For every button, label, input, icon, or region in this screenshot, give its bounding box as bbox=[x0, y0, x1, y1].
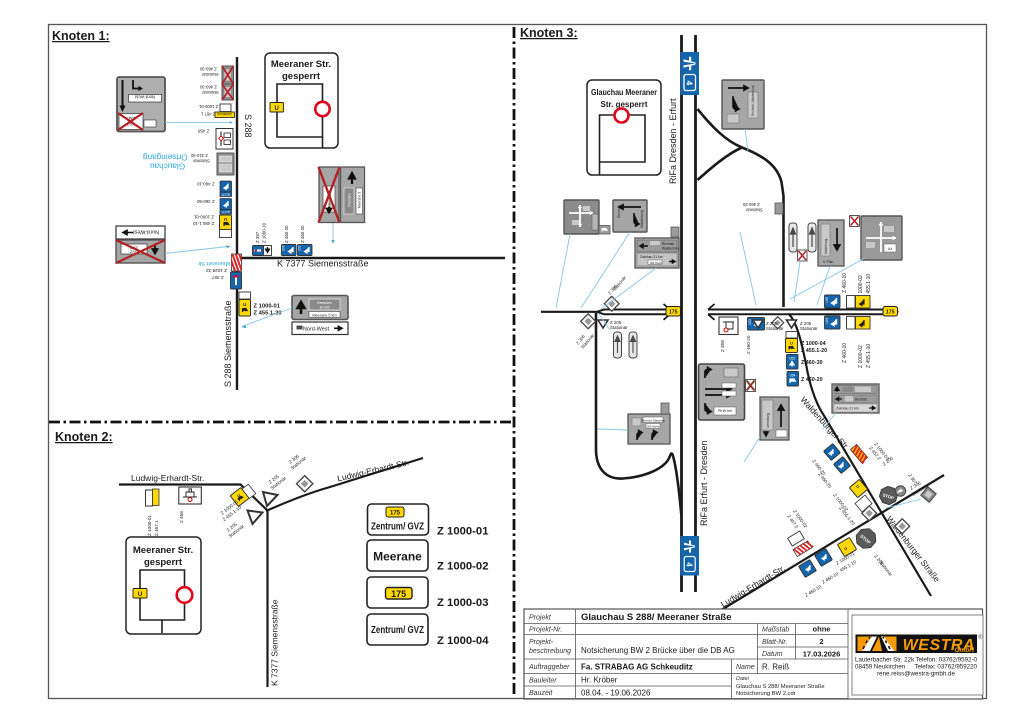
svg-text:S 288: S 288 bbox=[243, 114, 253, 138]
svg-text:U50: U50 bbox=[282, 245, 286, 251]
svg-text:A4: A4 bbox=[888, 247, 892, 251]
svg-text:Z 1000-01: Z 1000-01 bbox=[193, 215, 214, 220]
svg-text:Waldenburg: Waldenburg bbox=[662, 247, 680, 251]
svg-text:R. Reiß: R. Reiß bbox=[762, 663, 789, 672]
svg-text:Z 310-40: Z 310-40 bbox=[190, 153, 207, 158]
svg-text:Z 1000-01: Z 1000-01 bbox=[147, 515, 152, 536]
svg-text:Datei: Datei bbox=[736, 676, 750, 682]
svg-text:Waldenburg: Waldenburg bbox=[640, 210, 644, 228]
svg-text:U: U bbox=[224, 217, 227, 222]
svg-text:4: 4 bbox=[684, 562, 693, 567]
svg-text:Projekt-Nr.: Projekt-Nr. bbox=[529, 627, 562, 634]
svg-text:Z 1000-02: Z 1000-02 bbox=[858, 345, 864, 368]
svg-text:Zentrum/ GVZ: Zentrum/ GVZ bbox=[371, 625, 424, 636]
svg-text:S 288 Siemensstraße: S 288 Siemensstraße bbox=[223, 300, 233, 387]
svg-text:Blatt-Nr.: Blatt-Nr. bbox=[762, 639, 787, 646]
svg-text:Meerane: Meerane bbox=[373, 550, 422, 564]
svg-text:Glauchau S 288/ Meeraner Straß: Glauchau S 288/ Meeraner Straße bbox=[581, 612, 731, 623]
svg-text:U53: U53 bbox=[825, 318, 829, 324]
svg-text:U52: U52 bbox=[748, 319, 752, 325]
svg-text:GmbH: GmbH bbox=[955, 647, 975, 654]
svg-text:Z 458: Z 458 bbox=[720, 340, 725, 352]
svg-text:U54: U54 bbox=[790, 374, 796, 378]
svg-text:Stationär: Stationär bbox=[800, 326, 818, 331]
svg-text:Z 1000-02: Z 1000-02 bbox=[858, 275, 864, 298]
svg-text:Name: Name bbox=[736, 664, 755, 671]
svg-text:Meeraner Str.: Meeraner Str. bbox=[133, 545, 193, 556]
svg-text:Telefax: 03762/959220: Telefax: 03762/959220 bbox=[914, 664, 977, 671]
svg-text:Z 458: Z 458 bbox=[179, 511, 184, 523]
svg-text:Glauchau S 288/ Meeraner Straß: Glauchau S 288/ Meeraner Straße bbox=[736, 684, 825, 690]
svg-text:U55: U55 bbox=[825, 297, 829, 303]
svg-text:Z 1000-04: Z 1000-04 bbox=[437, 635, 489, 647]
svg-text:RiFa Dresden - Erfurt: RiFa Dresden - Erfurt bbox=[668, 98, 678, 184]
svg-text:Z 455.1-10: Z 455.1-10 bbox=[866, 344, 872, 368]
svg-text:Hr. Kröber: Hr. Kröber bbox=[581, 676, 618, 685]
svg-text:Z 1000-01: Z 1000-01 bbox=[198, 104, 218, 109]
svg-text:Nord-West: Nord-West bbox=[134, 95, 155, 100]
svg-text:Meeraner Str.: Meeraner Str. bbox=[271, 59, 331, 70]
svg-text:Stationär: Stationär bbox=[201, 90, 218, 95]
svg-text:Bauzeit: Bauzeit bbox=[529, 690, 553, 697]
svg-text:Z 457.1: Z 457.1 bbox=[154, 520, 159, 536]
svg-text:4: 4 bbox=[684, 81, 694, 86]
svg-text:175: 175 bbox=[886, 310, 895, 316]
svg-text:U: U bbox=[790, 341, 793, 346]
svg-text:175: 175 bbox=[669, 310, 678, 316]
svg-text:Auftraggeber: Auftraggeber bbox=[528, 664, 570, 671]
svg-text:Z 457.1: Z 457.1 bbox=[200, 112, 215, 117]
svg-text:Lauterbacher Str. 22k: Lauterbacher Str. 22k bbox=[855, 657, 915, 664]
svg-text:®: ® bbox=[978, 634, 983, 641]
svg-text:Zentrum: Zentrum bbox=[617, 205, 621, 218]
svg-text:17.03.2026: 17.03.2026 bbox=[803, 650, 841, 659]
svg-text:Telefon: 03762/9592-0: Telefon: 03762/9592-0 bbox=[915, 657, 977, 664]
svg-text:08459 Neukirchen: 08459 Neukirchen bbox=[855, 664, 906, 671]
svg-text:Glauchau Meeraner: Glauchau Meeraner bbox=[591, 88, 658, 97]
svg-text:Z 1000-02: Z 1000-02 bbox=[437, 561, 489, 573]
svg-text:Knoten 1:: Knoten 1: bbox=[52, 29, 110, 43]
svg-text:Bauleiter: Bauleiter bbox=[529, 678, 557, 685]
svg-text:Fa. STRABAG AG Schkeuditz: Fa. STRABAG AG Schkeuditz bbox=[581, 663, 693, 672]
svg-text:Zentrum/ GVZ: Zentrum/ GVZ bbox=[371, 522, 424, 533]
svg-text:Glauchau: Glauchau bbox=[150, 162, 185, 171]
svg-text:Z 460-20: Z 460-20 bbox=[801, 377, 823, 383]
svg-text:Z 455.1-10: Z 455.1-10 bbox=[866, 274, 872, 298]
svg-text:Z 460-20: Z 460-20 bbox=[284, 225, 289, 243]
svg-text:250 Werk: 250 Werk bbox=[647, 425, 660, 429]
svg-text:Z 1000-04: Z 1000-04 bbox=[801, 341, 826, 347]
svg-text:U53: U53 bbox=[789, 357, 795, 361]
svg-text:lt. Plan: lt. Plan bbox=[823, 260, 833, 264]
svg-text:Umleitung: Umleitung bbox=[766, 413, 770, 428]
svg-text:U: U bbox=[243, 302, 246, 307]
svg-text:RiFa Erfurt - Dresden: RiFa Erfurt - Dresden bbox=[699, 440, 709, 526]
svg-text:Z 387: Z 387 bbox=[255, 231, 260, 243]
svg-text:Dresden: Dresden bbox=[348, 193, 352, 207]
svg-text:K 7377 Siemensstraße: K 7377 Siemensstraße bbox=[270, 599, 280, 686]
svg-text:Umleitung: Umleitung bbox=[217, 112, 232, 116]
svg-text:U175: U175 bbox=[222, 210, 230, 214]
svg-text:Z 460-20: Z 460-20 bbox=[746, 335, 751, 354]
svg-text:Stationär: Stationär bbox=[201, 72, 218, 77]
svg-text:Z 1000-03: Z 1000-03 bbox=[437, 597, 489, 609]
svg-text:Z 460-20: Z 460-20 bbox=[742, 202, 759, 207]
svg-text:175: 175 bbox=[390, 511, 401, 517]
svg-text:175: 175 bbox=[391, 589, 406, 599]
svg-text:ohne: ohne bbox=[813, 625, 831, 634]
svg-text:Knoten 2:: Knoten 2: bbox=[55, 430, 113, 444]
svg-text:Z 455.1-10: Z 455.1-10 bbox=[192, 221, 214, 226]
svg-text:Ludwig-Erhardt-Str.: Ludwig-Erhardt-Str. bbox=[131, 473, 204, 483]
svg-text:Nord-West: Nord-West bbox=[132, 229, 159, 235]
svg-text:DB Werk: DB Werk bbox=[650, 261, 662, 265]
svg-text:2: 2 bbox=[819, 637, 823, 646]
svg-text:U: U bbox=[275, 106, 279, 112]
svg-text:K 7377 Siemensstraße: K 7377 Siemensstraße bbox=[277, 259, 369, 269]
svg-text:Z 460-30: Z 460-30 bbox=[199, 85, 216, 90]
svg-text:rene.reiss@westra-gmbh.de: rene.reiss@westra-gmbh.de bbox=[877, 671, 955, 678]
svg-text:beschreibung: beschreibung bbox=[529, 648, 571, 655]
svg-text:Z 458: Z 458 bbox=[197, 129, 209, 134]
svg-text:Z 1000-10: Z 1000-10 bbox=[262, 222, 267, 243]
svg-text:Z 455.1-20: Z 455.1-20 bbox=[801, 348, 827, 354]
svg-text:Z 460-10: Z 460-10 bbox=[196, 182, 214, 187]
svg-text:U175: U175 bbox=[222, 193, 230, 197]
svg-text:PKW frei: PKW frei bbox=[718, 409, 732, 413]
svg-text:Z 460-50: Z 460-50 bbox=[196, 199, 214, 204]
svg-text:Z 1000-01: Z 1000-01 bbox=[254, 304, 281, 310]
svg-text:Zentrum Glauchau: Zentrum Glauchau bbox=[641, 419, 665, 423]
svg-text:Nord-West: Nord-West bbox=[303, 327, 330, 333]
svg-text:Maßstab: Maßstab bbox=[762, 627, 789, 634]
svg-text:Stationär: Stationär bbox=[745, 208, 762, 213]
svg-text:Notsicherung BW 2 Brücke über: Notsicherung BW 2 Brücke über die DB AG bbox=[581, 646, 735, 655]
svg-text:Projekt-: Projekt- bbox=[529, 639, 554, 646]
svg-text:Z 460-10: Z 460-10 bbox=[842, 343, 848, 363]
svg-text:Datum: Datum bbox=[762, 651, 783, 658]
svg-text:Meeraner Str: Meeraner Str bbox=[198, 260, 230, 266]
svg-text:Z 1000-01: Z 1000-01 bbox=[437, 526, 489, 538]
svg-text:Zwickau 21 km: Zwickau 21 km bbox=[640, 255, 663, 259]
svg-text:Rechtsb.: Rechtsb. bbox=[662, 242, 675, 246]
svg-text:Stationär: Stationär bbox=[766, 326, 784, 331]
svg-text:Z 460-10: Z 460-10 bbox=[842, 273, 848, 293]
svg-text:U: U bbox=[138, 592, 142, 598]
svg-text:Erfurt: Erfurt bbox=[320, 305, 331, 310]
svg-text:Z 460-30: Z 460-30 bbox=[801, 360, 823, 366]
svg-text:Z 460-30: Z 460-30 bbox=[199, 67, 216, 72]
svg-text:Rechtsb.: Rechtsb. bbox=[855, 398, 868, 402]
svg-text:Notsicherung BW 2.cdr: Notsicherung BW 2.cdr bbox=[736, 691, 796, 697]
svg-text:Meerane 5 km: Meerane 5 km bbox=[312, 313, 336, 317]
svg-text:Z 1028-33: Z 1028-33 bbox=[206, 268, 227, 273]
svg-text:U52: U52 bbox=[298, 245, 302, 251]
svg-text:Z 460-20: Z 460-20 bbox=[300, 225, 305, 243]
svg-text:Stationär: Stationär bbox=[610, 325, 628, 330]
svg-text:Ortseingang: Ortseingang bbox=[143, 153, 188, 162]
svg-text:Projekt: Projekt bbox=[529, 615, 552, 622]
svg-text:08.04. - 19.06.2026: 08.04. - 19.06.2026 bbox=[581, 689, 651, 698]
svg-text:Meerane 5: Meerane 5 bbox=[358, 192, 362, 208]
svg-text:Umleitung: Umleitung bbox=[824, 239, 828, 254]
svg-text:gesperrt: gesperrt bbox=[282, 71, 321, 82]
svg-text:Knoten 3:: Knoten 3: bbox=[520, 26, 578, 40]
svg-text:Rechtsb. Waldenburg: Rechtsb. Waldenburg bbox=[751, 85, 755, 116]
svg-text:Zwickau 21 km: Zwickau 21 km bbox=[836, 407, 859, 411]
svg-text:Z 357: Z 357 bbox=[212, 275, 224, 280]
svg-text:gesperrt: gesperrt bbox=[144, 557, 183, 568]
svg-text:Stationär: Stationär bbox=[192, 159, 209, 164]
